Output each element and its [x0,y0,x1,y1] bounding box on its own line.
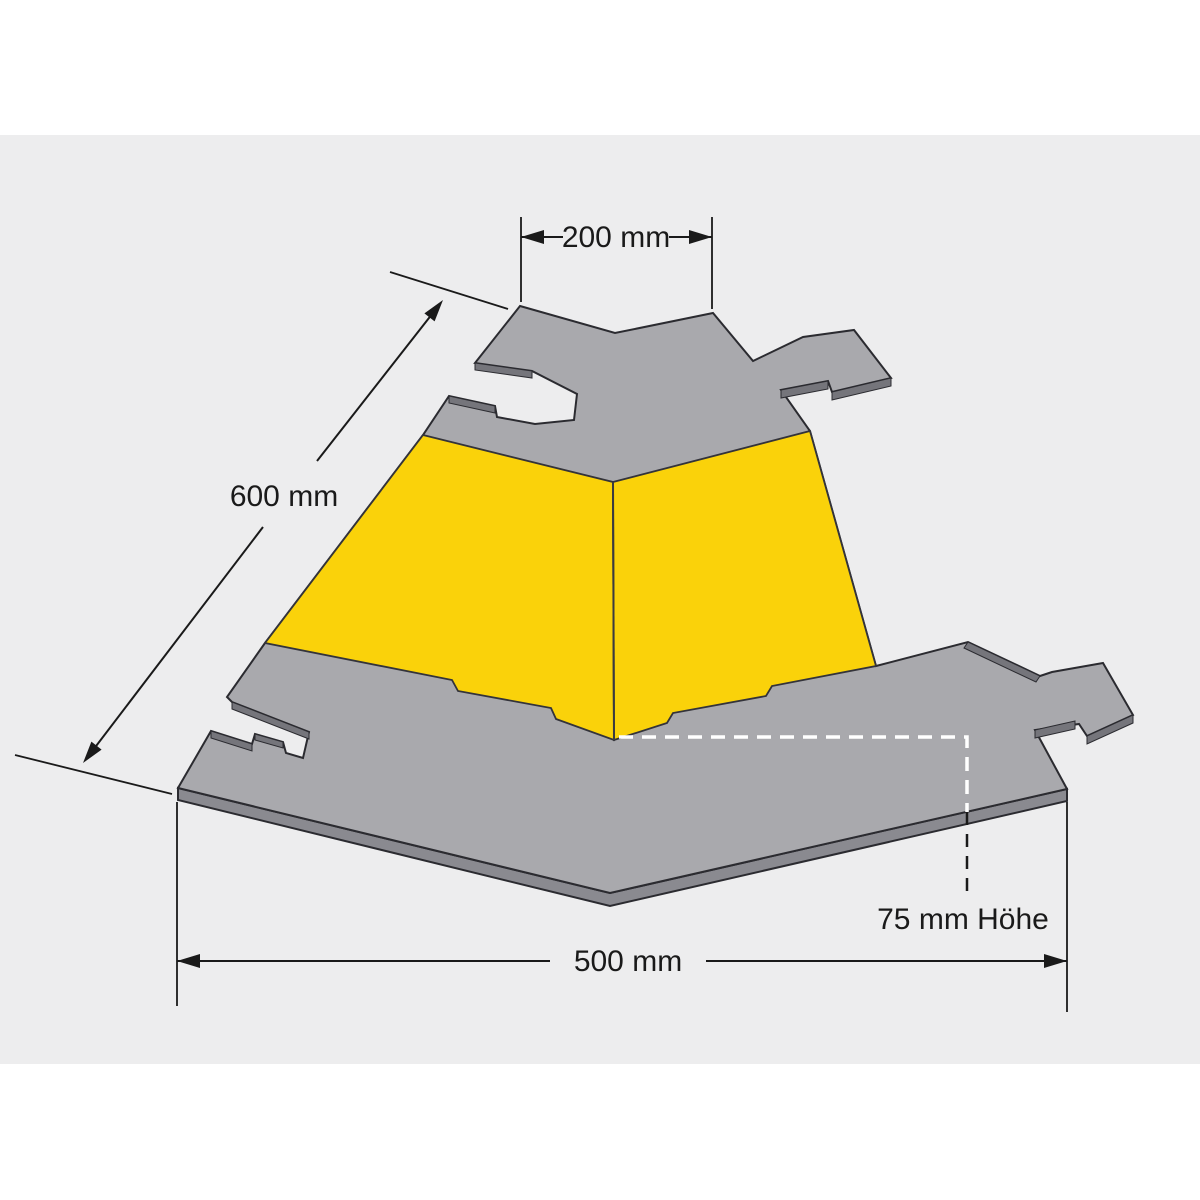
dimension-label-height: 75 mm Höhe [877,903,1049,936]
dimension-drawing: 200 mm 600 mm 500 mm 75 mm Höhe [0,0,1200,1200]
dimension-label-side-length: 600 mm [230,480,338,513]
ridge-line [613,482,614,741]
dimension-label-bottom-width: 500 mm [574,945,682,978]
diagram-page: 200 mm 600 mm 500 mm 75 mm Höhe [0,0,1200,1200]
dimension-label-top-width: 200 mm [562,221,670,254]
